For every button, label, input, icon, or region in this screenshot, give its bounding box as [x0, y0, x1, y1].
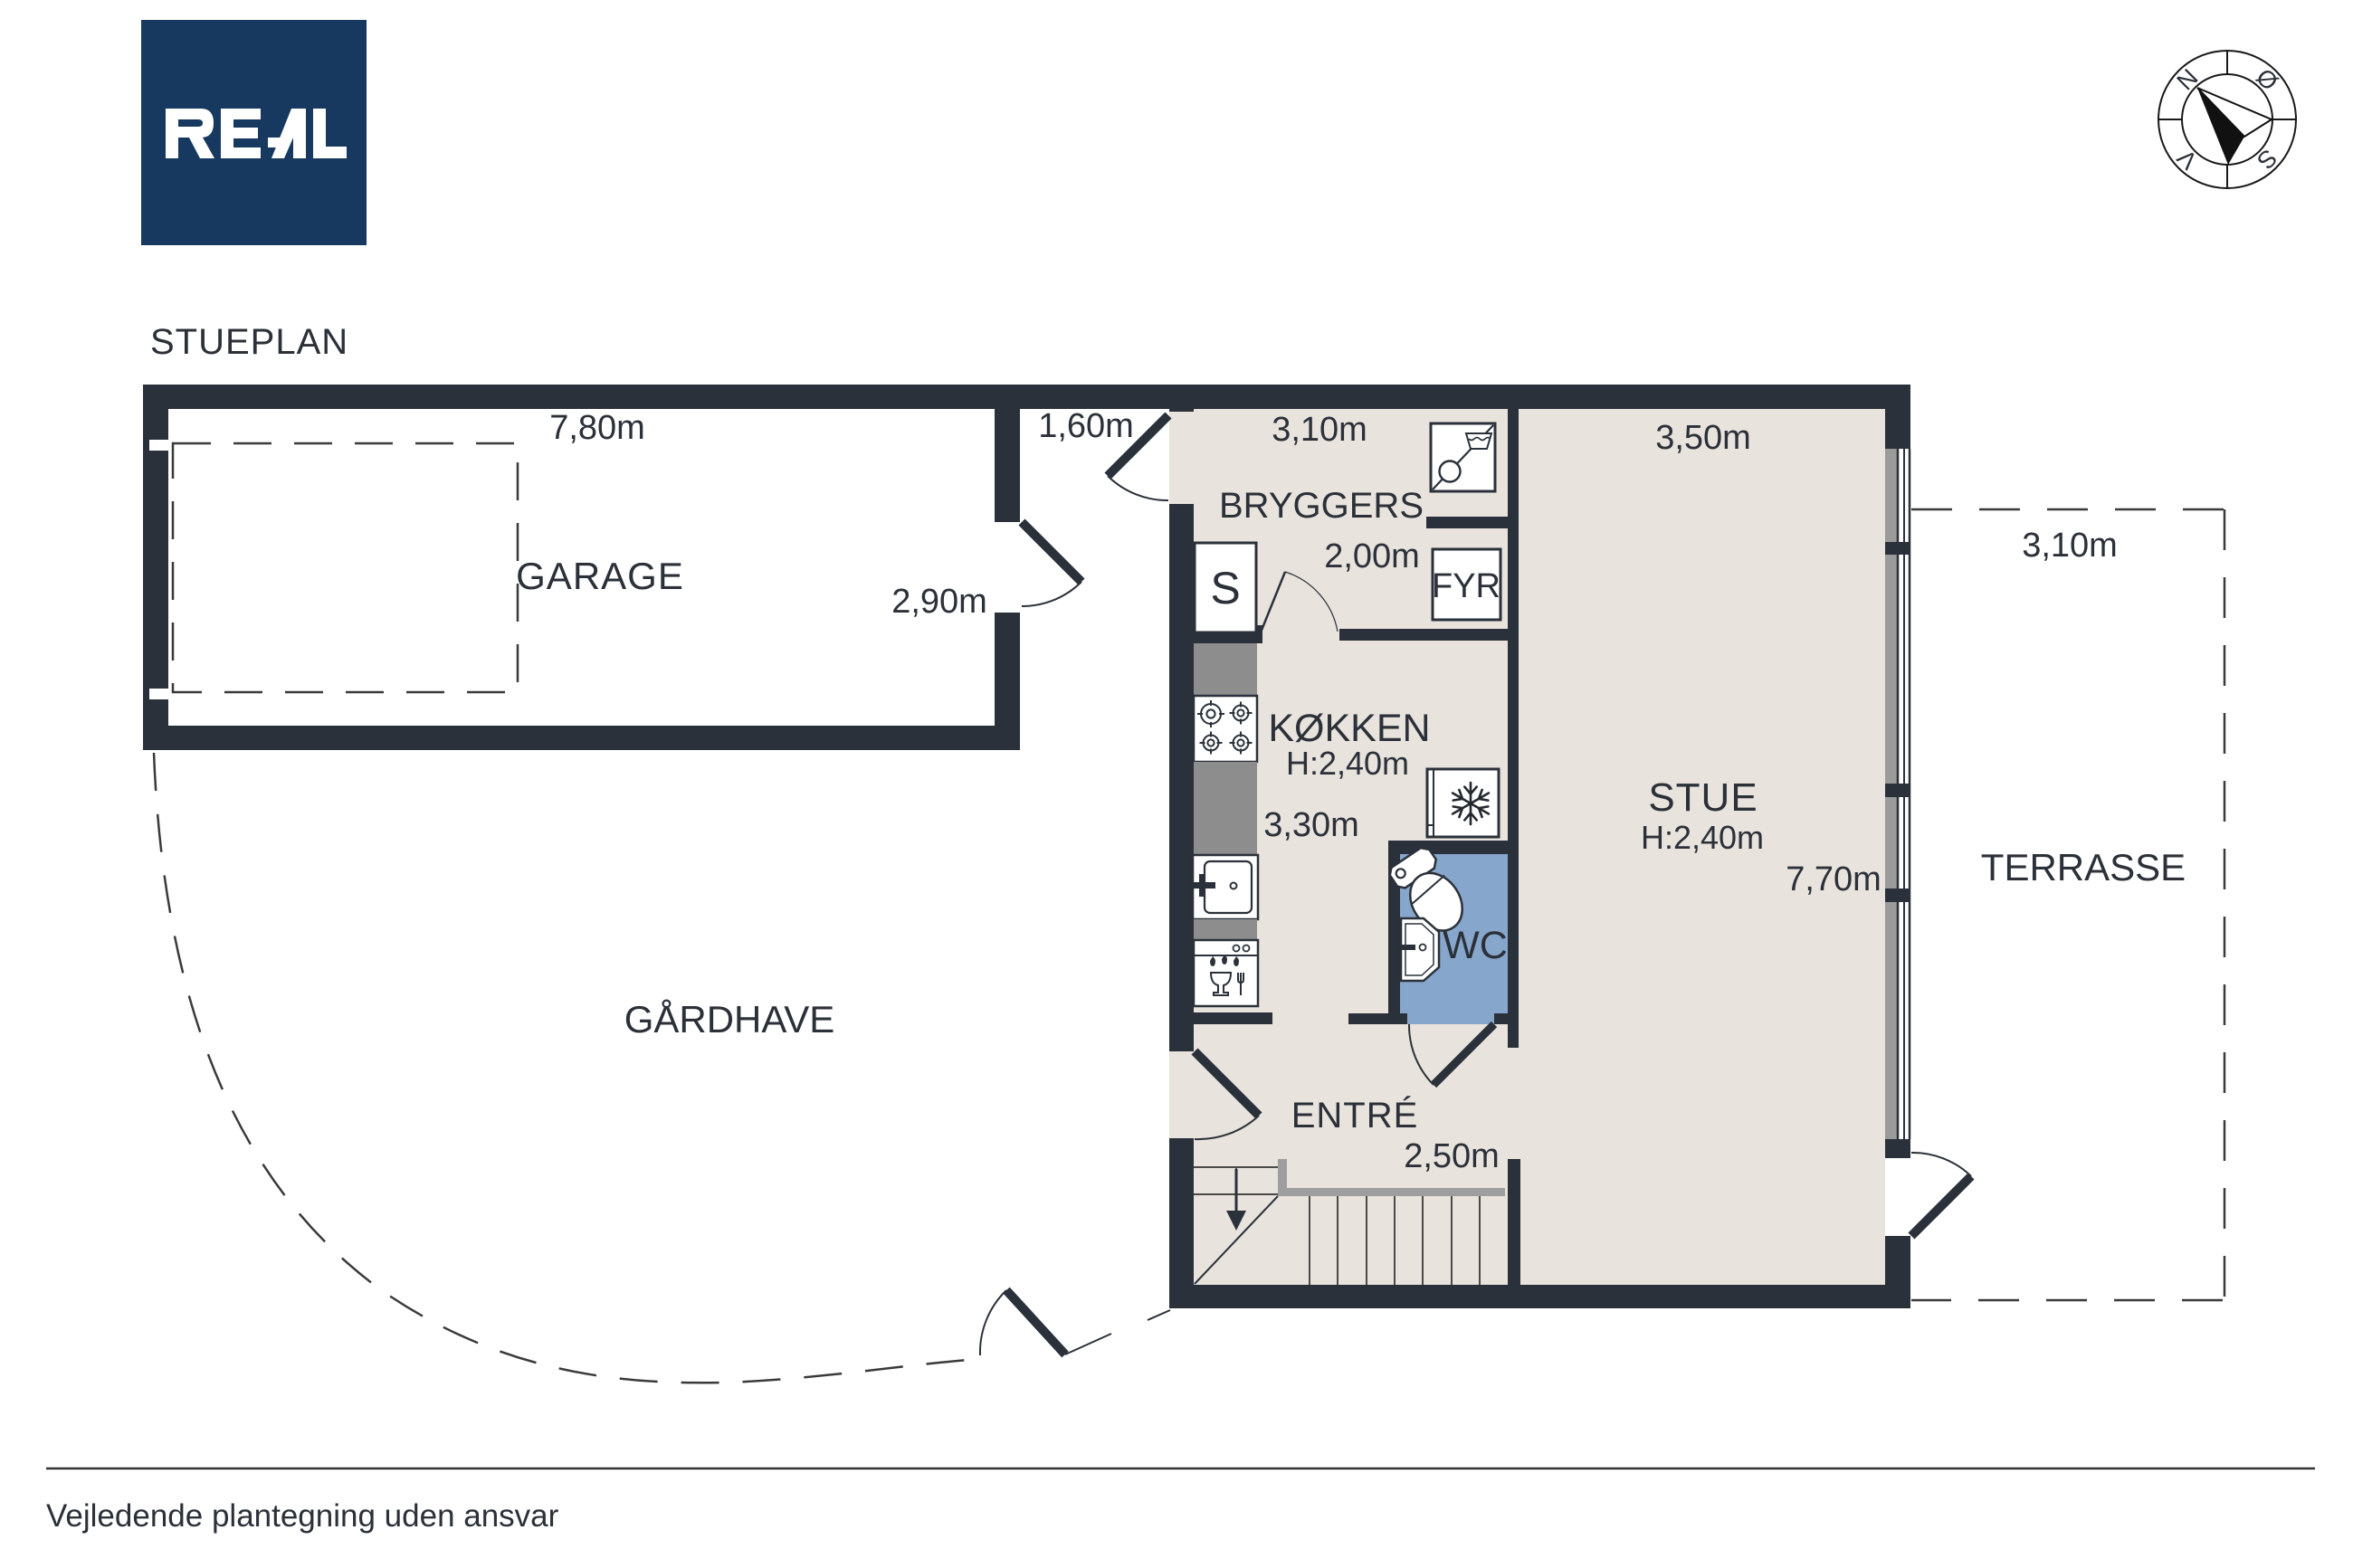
svg-text:STUEPLAN: STUEPLAN	[150, 322, 348, 362]
svg-text:GARAGE: GARAGE	[516, 555, 684, 597]
svg-text:3,10m: 3,10m	[2022, 527, 2118, 565]
svg-text:GÅRDHAVE: GÅRDHAVE	[624, 998, 835, 1041]
svg-text:ENTRÉ: ENTRÉ	[1291, 1095, 1419, 1136]
svg-text:7,70m: 7,70m	[1786, 860, 1881, 898]
svg-text:FYR: FYR	[1432, 567, 1500, 605]
svg-text:1,60m: 1,60m	[1038, 407, 1134, 445]
svg-text:KØKKEN: KØKKEN	[1268, 707, 1430, 750]
svg-text:BRYGGERS: BRYGGERS	[1219, 486, 1424, 526]
svg-text:TERRASSE: TERRASSE	[1981, 846, 2186, 889]
svg-text:2,00m: 2,00m	[1324, 537, 1420, 575]
svg-text:STUE: STUE	[1648, 775, 1758, 820]
svg-text:2,90m: 2,90m	[891, 583, 987, 621]
svg-text:3,10m: 3,10m	[1272, 411, 1367, 449]
svg-text:Vejledende plantegning uden an: Vejledende plantegning uden ansvar	[46, 1498, 559, 1534]
svg-text:H:2,40m: H:2,40m	[1286, 745, 1409, 782]
svg-text:WC: WC	[1443, 924, 1508, 967]
svg-text:3,30m: 3,30m	[1263, 806, 1359, 844]
svg-text:3,50m: 3,50m	[1655, 419, 1751, 457]
svg-text:2,50m: 2,50m	[1404, 1137, 1500, 1175]
svg-text:S: S	[1210, 563, 1240, 613]
svg-text:H:2,40m: H:2,40m	[1641, 819, 1764, 856]
svg-text:7,80m: 7,80m	[549, 409, 645, 447]
